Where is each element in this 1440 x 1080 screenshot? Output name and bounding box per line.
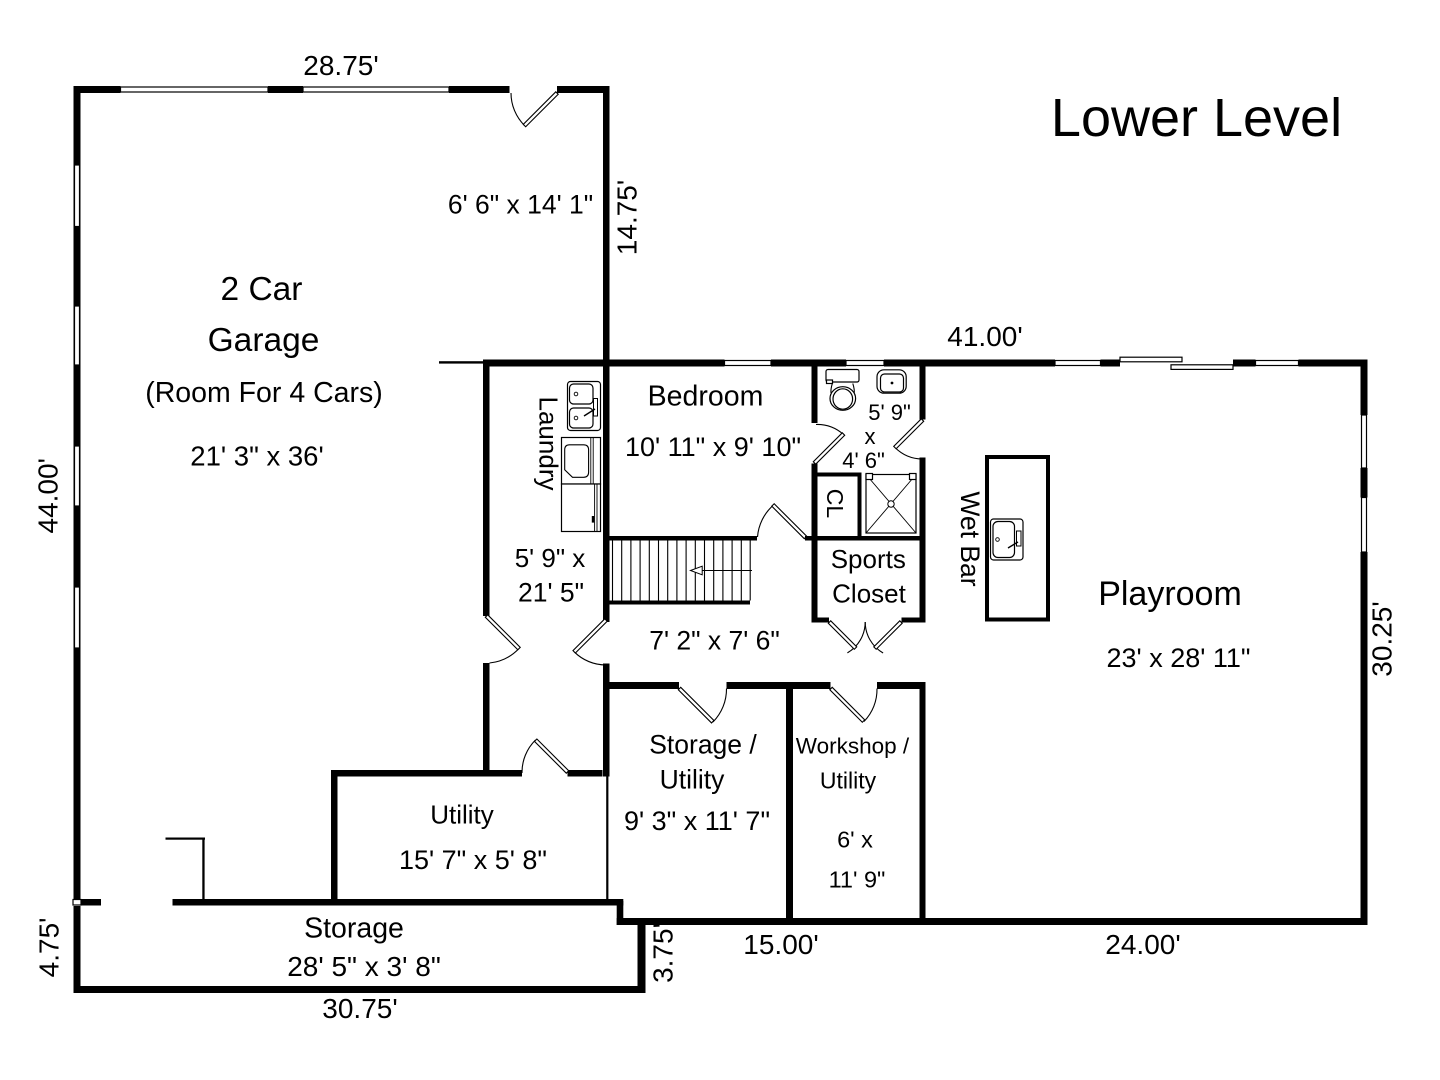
svg-text:(Room For 4 Cars): (Room For 4 Cars) xyxy=(145,377,383,409)
svg-text:6' 6" x 14' 1": 6' 6" x 14' 1" xyxy=(448,190,593,220)
svg-text:Bedroom: Bedroom xyxy=(648,381,764,413)
svg-text:24.00': 24.00' xyxy=(1105,929,1180,960)
svg-text:4' 6": 4' 6" xyxy=(842,448,885,473)
svg-text:Playroom: Playroom xyxy=(1098,575,1242,613)
svg-text:Garage: Garage xyxy=(208,322,320,359)
svg-text:Storage /: Storage / xyxy=(649,730,757,760)
svg-text:Utility: Utility xyxy=(660,765,726,795)
svg-text:15' 7" x 5' 8": 15' 7" x 5' 8" xyxy=(399,845,547,875)
svg-text:9' 3" x 11' 7": 9' 3" x 11' 7" xyxy=(624,806,770,836)
svg-text:x: x xyxy=(865,424,876,449)
svg-text:6' x: 6' x xyxy=(837,827,873,853)
svg-text:5' 9": 5' 9" xyxy=(868,400,911,425)
svg-text:Utility: Utility xyxy=(430,800,494,830)
svg-text:4.75': 4.75' xyxy=(34,917,65,977)
svg-text:Workshop /: Workshop / xyxy=(796,734,910,759)
svg-text:30.75': 30.75' xyxy=(322,993,397,1024)
svg-text:28.75': 28.75' xyxy=(303,50,378,81)
svg-text:14.75': 14.75' xyxy=(612,180,643,255)
svg-text:21' 5": 21' 5" xyxy=(518,578,584,608)
svg-text:5' 9" x: 5' 9" x xyxy=(515,543,586,573)
svg-text:15.00': 15.00' xyxy=(743,929,818,960)
svg-text:Wet Bar: Wet Bar xyxy=(955,491,985,586)
svg-text:10' 11" x 9' 10": 10' 11" x 9' 10" xyxy=(625,432,801,462)
svg-text:30.25': 30.25' xyxy=(1367,601,1398,676)
svg-text:Utility: Utility xyxy=(820,768,877,794)
svg-text:23' x 28' 11": 23' x 28' 11" xyxy=(1107,643,1251,673)
svg-text:2 Car: 2 Car xyxy=(221,271,303,308)
svg-text:28' 5" x 3' 8": 28' 5" x 3' 8" xyxy=(287,951,441,982)
svg-text:7' 2" x 7' 6": 7' 2" x 7' 6" xyxy=(649,626,780,656)
svg-text:Closet: Closet xyxy=(832,579,906,609)
svg-text:41.00': 41.00' xyxy=(947,321,1022,352)
svg-text:21' 3" x 36': 21' 3" x 36' xyxy=(190,441,323,472)
svg-text:3.75': 3.75' xyxy=(648,923,679,983)
svg-text:Sports: Sports xyxy=(831,544,906,574)
svg-text:Laundry: Laundry xyxy=(534,397,564,491)
svg-text:CL: CL xyxy=(822,489,848,519)
svg-text:11' 9": 11' 9" xyxy=(829,867,886,893)
svg-text:Storage: Storage xyxy=(304,913,404,945)
svg-text:44.00': 44.00' xyxy=(32,458,63,533)
svg-text:Lower Level: Lower Level xyxy=(1051,88,1342,148)
